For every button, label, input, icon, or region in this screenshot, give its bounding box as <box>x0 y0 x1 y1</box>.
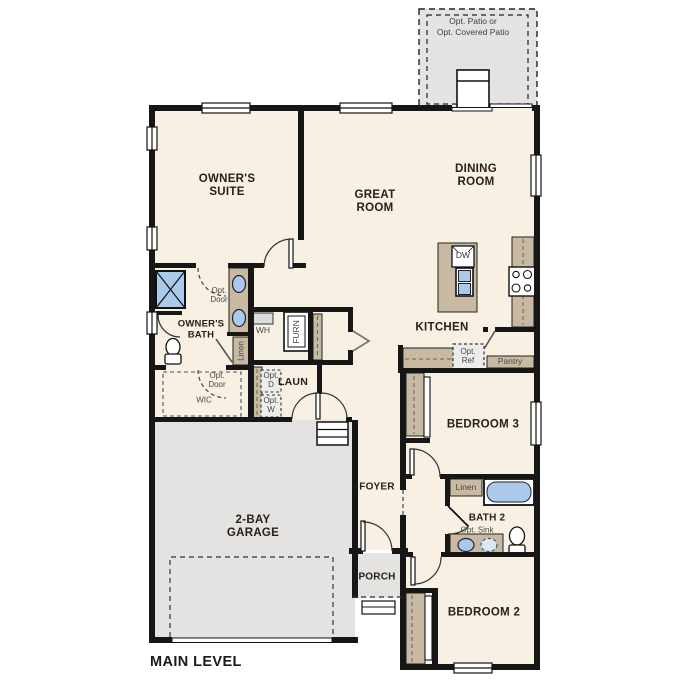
room-label-bath-2: BATH 2 <box>457 512 517 523</box>
label-opt-washer: Opt. W <box>260 397 282 415</box>
floor-plan-drawing <box>0 0 687 687</box>
label-dishwasher: DW <box>456 251 470 261</box>
island-sink-icon <box>456 268 473 296</box>
room-label-wic: WIC <box>184 397 224 406</box>
label-opt-refrigerator: Opt. Ref <box>456 348 480 366</box>
label-opt-door-wic: Opt. Door <box>203 372 231 390</box>
room-label-bedroom-2: BEDROOM 2 <box>429 607 539 620</box>
label-linen-bath2: Linen <box>446 483 486 493</box>
cooktop-icon <box>509 267 535 296</box>
garage-door <box>172 638 332 643</box>
label-furnace: FURN <box>292 320 302 344</box>
label-linen-owners: Linen <box>237 341 246 361</box>
room-label-great-room: GREAT ROOM <box>346 189 404 215</box>
patio-label: Opt. Patio or Opt. Covered Patio <box>413 16 533 37</box>
room-label-garage: 2-BAY GARAGE <box>213 514 293 540</box>
patio-label-line1: Opt. Patio or <box>413 16 533 27</box>
patio-step <box>457 70 489 108</box>
room-label-porch: PORCH <box>347 571 407 582</box>
room-label-owners-suite: OWNER'S SUITE <box>187 173 267 199</box>
label-pantry: Pantry <box>490 357 530 367</box>
shower-icon <box>156 271 185 308</box>
label-water-heater: WH <box>248 326 278 336</box>
room-label-bedroom-3: BEDROOM 3 <box>428 419 538 432</box>
label-opt-dryer: Opt. D <box>260 372 282 390</box>
label-opt-sink: Opt. Sink <box>452 527 502 536</box>
porch-step <box>362 601 395 614</box>
room-label-dining-room: DINING ROOM <box>447 163 505 189</box>
patio-label-line2: Opt. Covered Patio <box>413 27 533 38</box>
bath2-toilet-icon <box>509 527 525 554</box>
label-opt-door-bath: Opt. Door <box>205 287 233 305</box>
room-label-owners-bath: OWNER'S BATH <box>170 319 232 340</box>
bathtub-icon <box>484 479 534 505</box>
owners-toilet-icon <box>165 339 181 365</box>
garage-entry-steps <box>317 422 348 445</box>
room-label-kitchen: KITCHEN <box>392 322 492 335</box>
plan-title: MAIN LEVEL <box>150 654 242 670</box>
water-heater-icon <box>252 313 273 324</box>
room-label-foyer: FOYER <box>347 481 407 492</box>
floor-plan: Opt. Patio or Opt. Covered Patio OWNER'S… <box>0 0 687 687</box>
